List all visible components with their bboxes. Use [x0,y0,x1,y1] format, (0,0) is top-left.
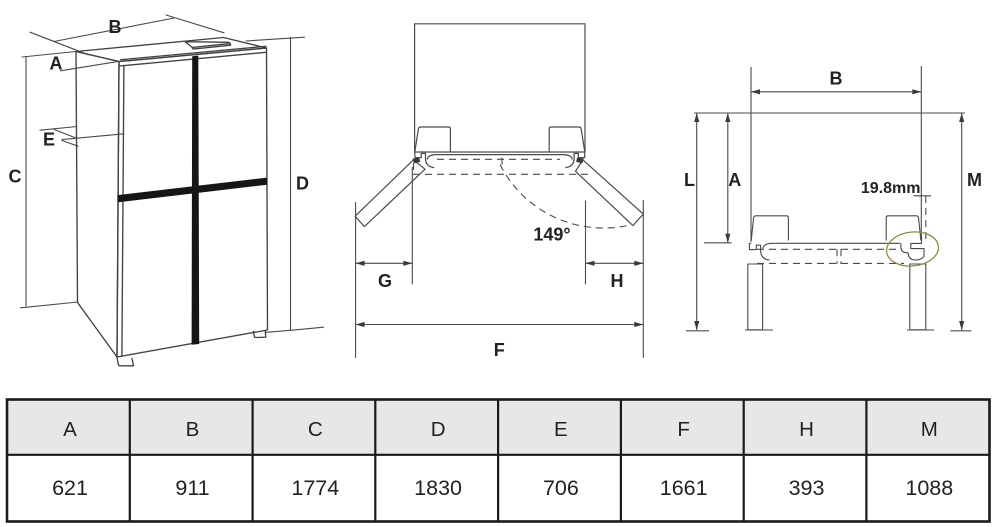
svg-text:D: D [431,418,446,441]
svg-text:621: 621 [52,476,88,500]
svg-text:E: E [43,130,55,150]
svg-text:B: B [186,418,200,441]
svg-text:706: 706 [543,476,579,500]
svg-text:B: B [109,17,122,37]
svg-text:B: B [830,69,843,89]
svg-text:H: H [799,418,814,441]
svg-text:G: G [378,271,392,291]
svg-text:393: 393 [789,476,825,500]
svg-text:C: C [308,418,323,441]
svg-text:A: A [63,418,77,441]
svg-text:F: F [494,340,505,360]
svg-text:A: A [728,170,741,190]
svg-text:F: F [677,418,690,441]
svg-text:C: C [9,167,22,187]
svg-text:149°: 149° [533,225,570,245]
svg-text:A: A [50,54,63,74]
svg-text:H: H [611,271,624,291]
svg-text:1830: 1830 [414,476,462,500]
svg-text:L: L [684,170,695,190]
svg-text:911: 911 [175,476,209,500]
svg-text:M: M [921,418,938,441]
svg-text:1088: 1088 [905,476,953,500]
svg-text:19.8mm: 19.8mm [861,180,921,197]
svg-text:E: E [554,418,568,441]
svg-text:D: D [296,174,309,194]
svg-text:1774: 1774 [291,476,339,500]
svg-text:1661: 1661 [660,476,708,500]
svg-text:M: M [967,170,982,190]
